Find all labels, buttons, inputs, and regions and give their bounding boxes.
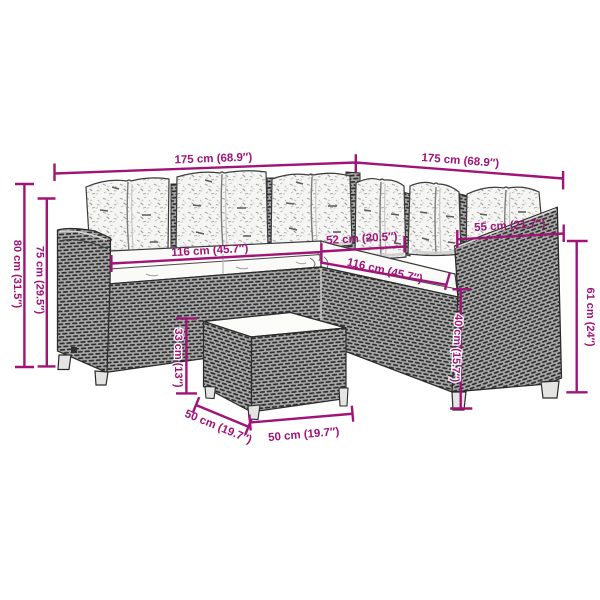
svg-text:61 cm (24″): 61 cm (24″): [584, 287, 596, 346]
svg-text:80 cm (31.5″): 80 cm (31.5″): [11, 240, 23, 309]
svg-text:75 cm (29.5″): 75 cm (29.5″): [34, 246, 46, 315]
svg-text:33 cm (13″): 33 cm (13″): [172, 328, 184, 387]
